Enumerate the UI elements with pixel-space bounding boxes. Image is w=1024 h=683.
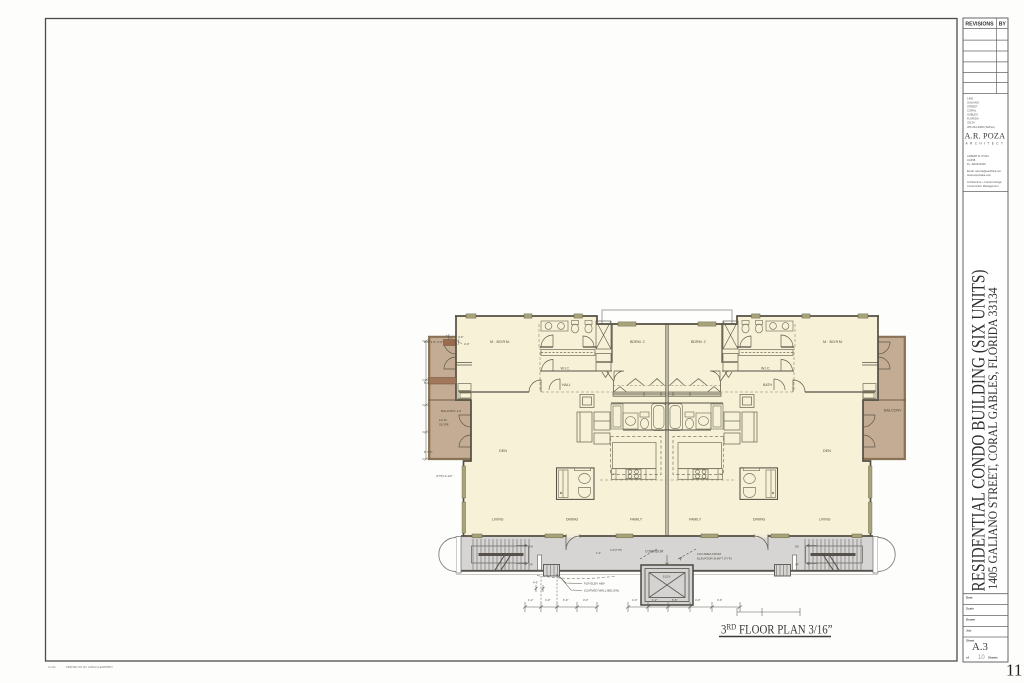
svg-text:1/2 IN: 1/2 IN [439, 418, 447, 422]
svg-text:DN: DN [529, 545, 533, 549]
svg-text:10: 10 [978, 655, 985, 661]
svg-text:4'-0"(TYP): 4'-0"(TYP) [610, 548, 622, 552]
svg-text:LIVING: LIVING [492, 518, 504, 522]
svg-text:1'-4": 1'-4" [596, 551, 601, 555]
svg-text:5'-0": 5'-0" [424, 381, 430, 385]
svg-text:305 264-2008 (Tel/Fax): 305 264-2008 (Tel/Fax) [967, 125, 995, 129]
svg-text:11: 11 [1006, 661, 1022, 680]
svg-text:A.R. POZA: A.R. POZA [965, 132, 1006, 141]
svg-text:Date: Date [966, 596, 973, 600]
svg-text:6'-0": 6'-0" [563, 598, 568, 602]
svg-text:FLR AREA FROM: FLR AREA FROM [697, 552, 722, 556]
svg-text:M. BDRM.: M. BDRM. [490, 340, 511, 344]
svg-text:Construction Management: Construction Management [967, 184, 999, 188]
svg-text:W.I.C.: W.I.C. [561, 367, 571, 371]
svg-text:4'-6": 4'-6" [458, 335, 464, 339]
svg-text:DN: DN [795, 545, 799, 549]
svg-text:CORRIDOR: CORRIDOR [645, 550, 664, 554]
svg-text:BALCONY 2-6: BALCONY 2-6 [441, 409, 461, 413]
svg-text:BY: BY [999, 22, 1007, 28]
svg-text:1'-2": 1'-2" [652, 598, 657, 602]
svg-text:ELEVATOR SHAFT (TYP): ELEVATOR SHAFT (TYP) [697, 557, 732, 561]
svg-text:UP: UP [529, 563, 533, 567]
svg-text:UP: UP [795, 563, 799, 567]
svg-text:4'-0": 4'-0" [632, 598, 637, 602]
svg-text:AC#38: AC#38 [967, 158, 976, 162]
svg-text:HALL: HALL [562, 383, 571, 387]
svg-text:6'-8": 6'-8" [672, 598, 677, 602]
svg-text:ARCHITECT: ARCHITECT [966, 142, 1006, 146]
svg-text:A.3: A.3 [972, 641, 988, 653]
svg-text:3'-0": 3'-0" [583, 598, 588, 602]
svg-text:1'-2": 1'-2" [528, 598, 533, 602]
svg-text:FAMILY: FAMILY [630, 518, 643, 522]
svg-text:9'-6" 4'-6" 2'-0": 9'-6" 4'-6" 2'-0" [424, 340, 443, 344]
svg-text:DINING: DINING [566, 518, 579, 522]
svg-text:PRINTED ON NO. 1000H CLEARPRIN: PRINTED ON NO. 1000H CLEARPRINT [66, 665, 113, 669]
svg-text:4'-0": 4'-0" [695, 598, 700, 602]
svg-text:FLORIDA: FLORIDA [967, 117, 979, 121]
svg-text:CORAL: CORAL [967, 109, 977, 113]
svg-text:3-1-04: 3-1-04 [48, 665, 56, 669]
svg-text:1405: 1405 [967, 97, 973, 101]
svg-text:STREET: STREET [967, 105, 978, 109]
svg-text:8' 7'-6": 8' 7'-6" [424, 450, 433, 454]
svg-text:Job: Job [966, 629, 972, 633]
svg-text:4'-0": 4'-0" [533, 581, 538, 585]
svg-text:DEN: DEN [823, 449, 831, 453]
svg-text:Scale: Scale [966, 607, 974, 611]
svg-text:33134: 33134 [967, 121, 975, 125]
svg-text:FAMILY: FAMILY [689, 518, 702, 522]
svg-text:W.I.C.: W.I.C. [761, 367, 771, 371]
svg-text:GABLES: GABLES [967, 113, 978, 117]
svg-text:ALBERT R. POZA: ALBERT R. POZA [967, 154, 989, 158]
svg-text:ELEV.: ELEV. [663, 575, 671, 579]
svg-text:LIVING: LIVING [819, 518, 831, 522]
svg-text:GALIANO: GALIANO [967, 101, 979, 105]
svg-text:BDRM. 2: BDRM. 2 [630, 340, 645, 344]
svg-text:3'-6": 3'-6" [717, 598, 722, 602]
svg-text:of: of [966, 656, 969, 660]
svg-text:BATH: BATH [763, 383, 773, 387]
svg-text:M. BDRM.: M. BDRM. [823, 340, 844, 344]
svg-text:FLR ELEV ABV: FLR ELEV ABV [584, 582, 605, 586]
svg-text:www.arpozaaia.com: www.arpozaaia.com [967, 173, 992, 177]
svg-text:Sheets: Sheets [988, 656, 998, 660]
svg-text:(TYP) 4'-1/2": (TYP) 4'-1/2" [436, 474, 453, 478]
svg-text:4'-0": 4'-0" [545, 598, 550, 602]
svg-text:DINING: DINING [753, 518, 766, 522]
svg-text:Architecture + Interior Design: Architecture + Interior Design [967, 180, 1002, 184]
svg-text:Drawn: Drawn [966, 618, 975, 622]
svg-text:1405 GALIANO STREET, CORAL GAB: 1405 GALIANO STREET, CORAL GABLES, FLORI… [986, 288, 1000, 590]
svg-text:3RD FLOOR PLAN 3/16”: 3RD FLOOR PLAN 3/16” [721, 622, 832, 637]
svg-text:2'-0": 2'-0" [464, 342, 470, 346]
svg-text:FL. AR0012345: FL. AR0012345 [967, 162, 986, 166]
svg-text:(CURVED WALL BELOW): (CURVED WALL BELOW) [584, 589, 619, 593]
svg-text:DEN: DEN [499, 449, 507, 453]
svg-text:BDRM. 2: BDRM. 2 [691, 340, 706, 344]
svg-text:BALCONY: BALCONY [884, 409, 902, 413]
svg-text:Email: arpoza@earthlink.net: Email: arpoza@earthlink.net [967, 169, 1001, 173]
svg-text:SLOPE: SLOPE [439, 423, 449, 427]
svg-text:REVISIONS: REVISIONS [965, 22, 994, 28]
